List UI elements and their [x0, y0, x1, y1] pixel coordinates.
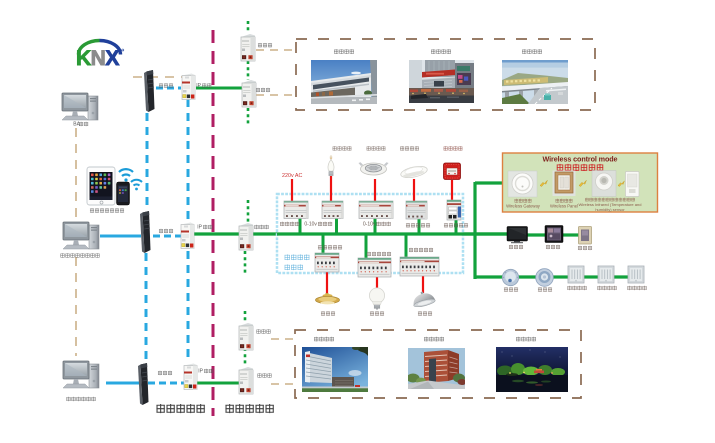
svg-text:Wireless control mode: Wireless control mode: [543, 155, 618, 164]
svg-text:0-10v: 0-10v: [363, 222, 376, 228]
svg-text:IP: IP: [197, 225, 202, 231]
svg-text:KNX: KNX: [76, 47, 119, 70]
svg-text:IP: IP: [196, 83, 201, 89]
svg-text:Wireless Gateway: Wireless Gateway: [506, 204, 541, 209]
svg-text:IP: IP: [198, 369, 203, 375]
svg-text:0-10v: 0-10v: [304, 222, 317, 228]
svg-text:Wireless Panel: Wireless Panel: [550, 204, 578, 209]
svg-text:220v AC: 220v AC: [282, 173, 302, 179]
svg-text:humidity) sensor: humidity) sensor: [595, 207, 625, 212]
